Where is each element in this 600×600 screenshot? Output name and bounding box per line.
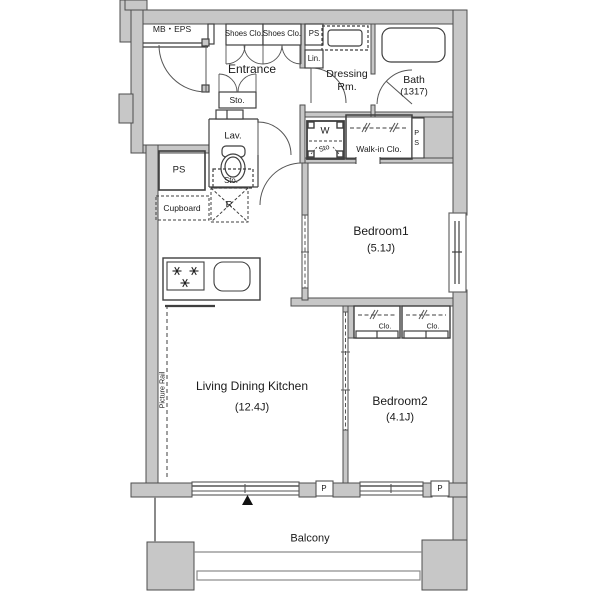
ps-walkin-label: PS: [413, 128, 420, 148]
lavatory-storage-label: Sto.: [224, 177, 238, 185]
bedroom-areas: [260, 163, 466, 338]
dressing-room-label: Dressing: [326, 69, 367, 80]
ldk-label: Living Dining Kitchen: [196, 380, 308, 392]
entrance-storage-label: Sto.: [229, 96, 244, 105]
balcony-label: Balcony: [290, 534, 329, 545]
closet-right-label: Clo.: [427, 322, 440, 329]
bedroom2-label: Bedroom2: [372, 395, 427, 407]
floor-plan: MB・EPS Shoes Clo. Shoes Clo. PS Lin. Ent…: [0, 0, 600, 600]
linen-label: Lin.: [308, 55, 321, 63]
closet-left-label: Clo.: [379, 322, 392, 329]
kitchen-counter: [163, 258, 260, 306]
ps-kitchen-label: PS: [173, 165, 186, 175]
washer-label: W: [321, 126, 330, 136]
mb-eps-label: MB・EPS: [153, 25, 191, 34]
pipe-right-label: P: [437, 485, 442, 493]
ldk-door: [260, 163, 302, 205]
cupboard-label: Cupboard: [163, 204, 200, 213]
lavatory-door: [258, 122, 291, 155]
balcony-area: [155, 497, 422, 580]
entrance-label: Entrance: [228, 63, 276, 75]
shoes-closet-left-label: Shoes Clo.: [225, 30, 263, 38]
bathtub-icon: [382, 28, 445, 62]
floorplan-canvas: [0, 0, 600, 600]
shoes-closet-right-label: Shoes Clo.: [263, 30, 301, 38]
ps-entrance-label: PS: [309, 30, 319, 38]
lavatory-label: Lav.: [224, 131, 241, 141]
bedroom2-size: (4.1J): [386, 413, 414, 424]
bath-size: (1317): [400, 87, 427, 97]
walkin-closet-label: Walk-in Clo.: [356, 145, 402, 154]
bedroom1-size: (5.1J): [367, 244, 395, 255]
orientation-marker: [242, 495, 253, 505]
washer-walkin-area: [307, 115, 424, 164]
ldk-size: (12.4J): [235, 403, 269, 414]
bath-label: Bath: [403, 75, 425, 86]
entrance-door: [159, 45, 206, 92]
kitchen-area: [156, 151, 260, 478]
pipe-left-label: P: [321, 485, 326, 493]
dressing-room-suffix: Rm.: [337, 82, 356, 93]
bedroom1-window: [449, 213, 466, 292]
storage-doors: [219, 74, 256, 92]
sliding-doors: [301, 215, 350, 430]
lavatory-area: [209, 110, 291, 188]
refrigerator-label: R: [226, 200, 233, 210]
picture-rail-label: Picture Rail: [158, 372, 165, 409]
bedroom1-label: Bedroom1: [353, 225, 408, 237]
